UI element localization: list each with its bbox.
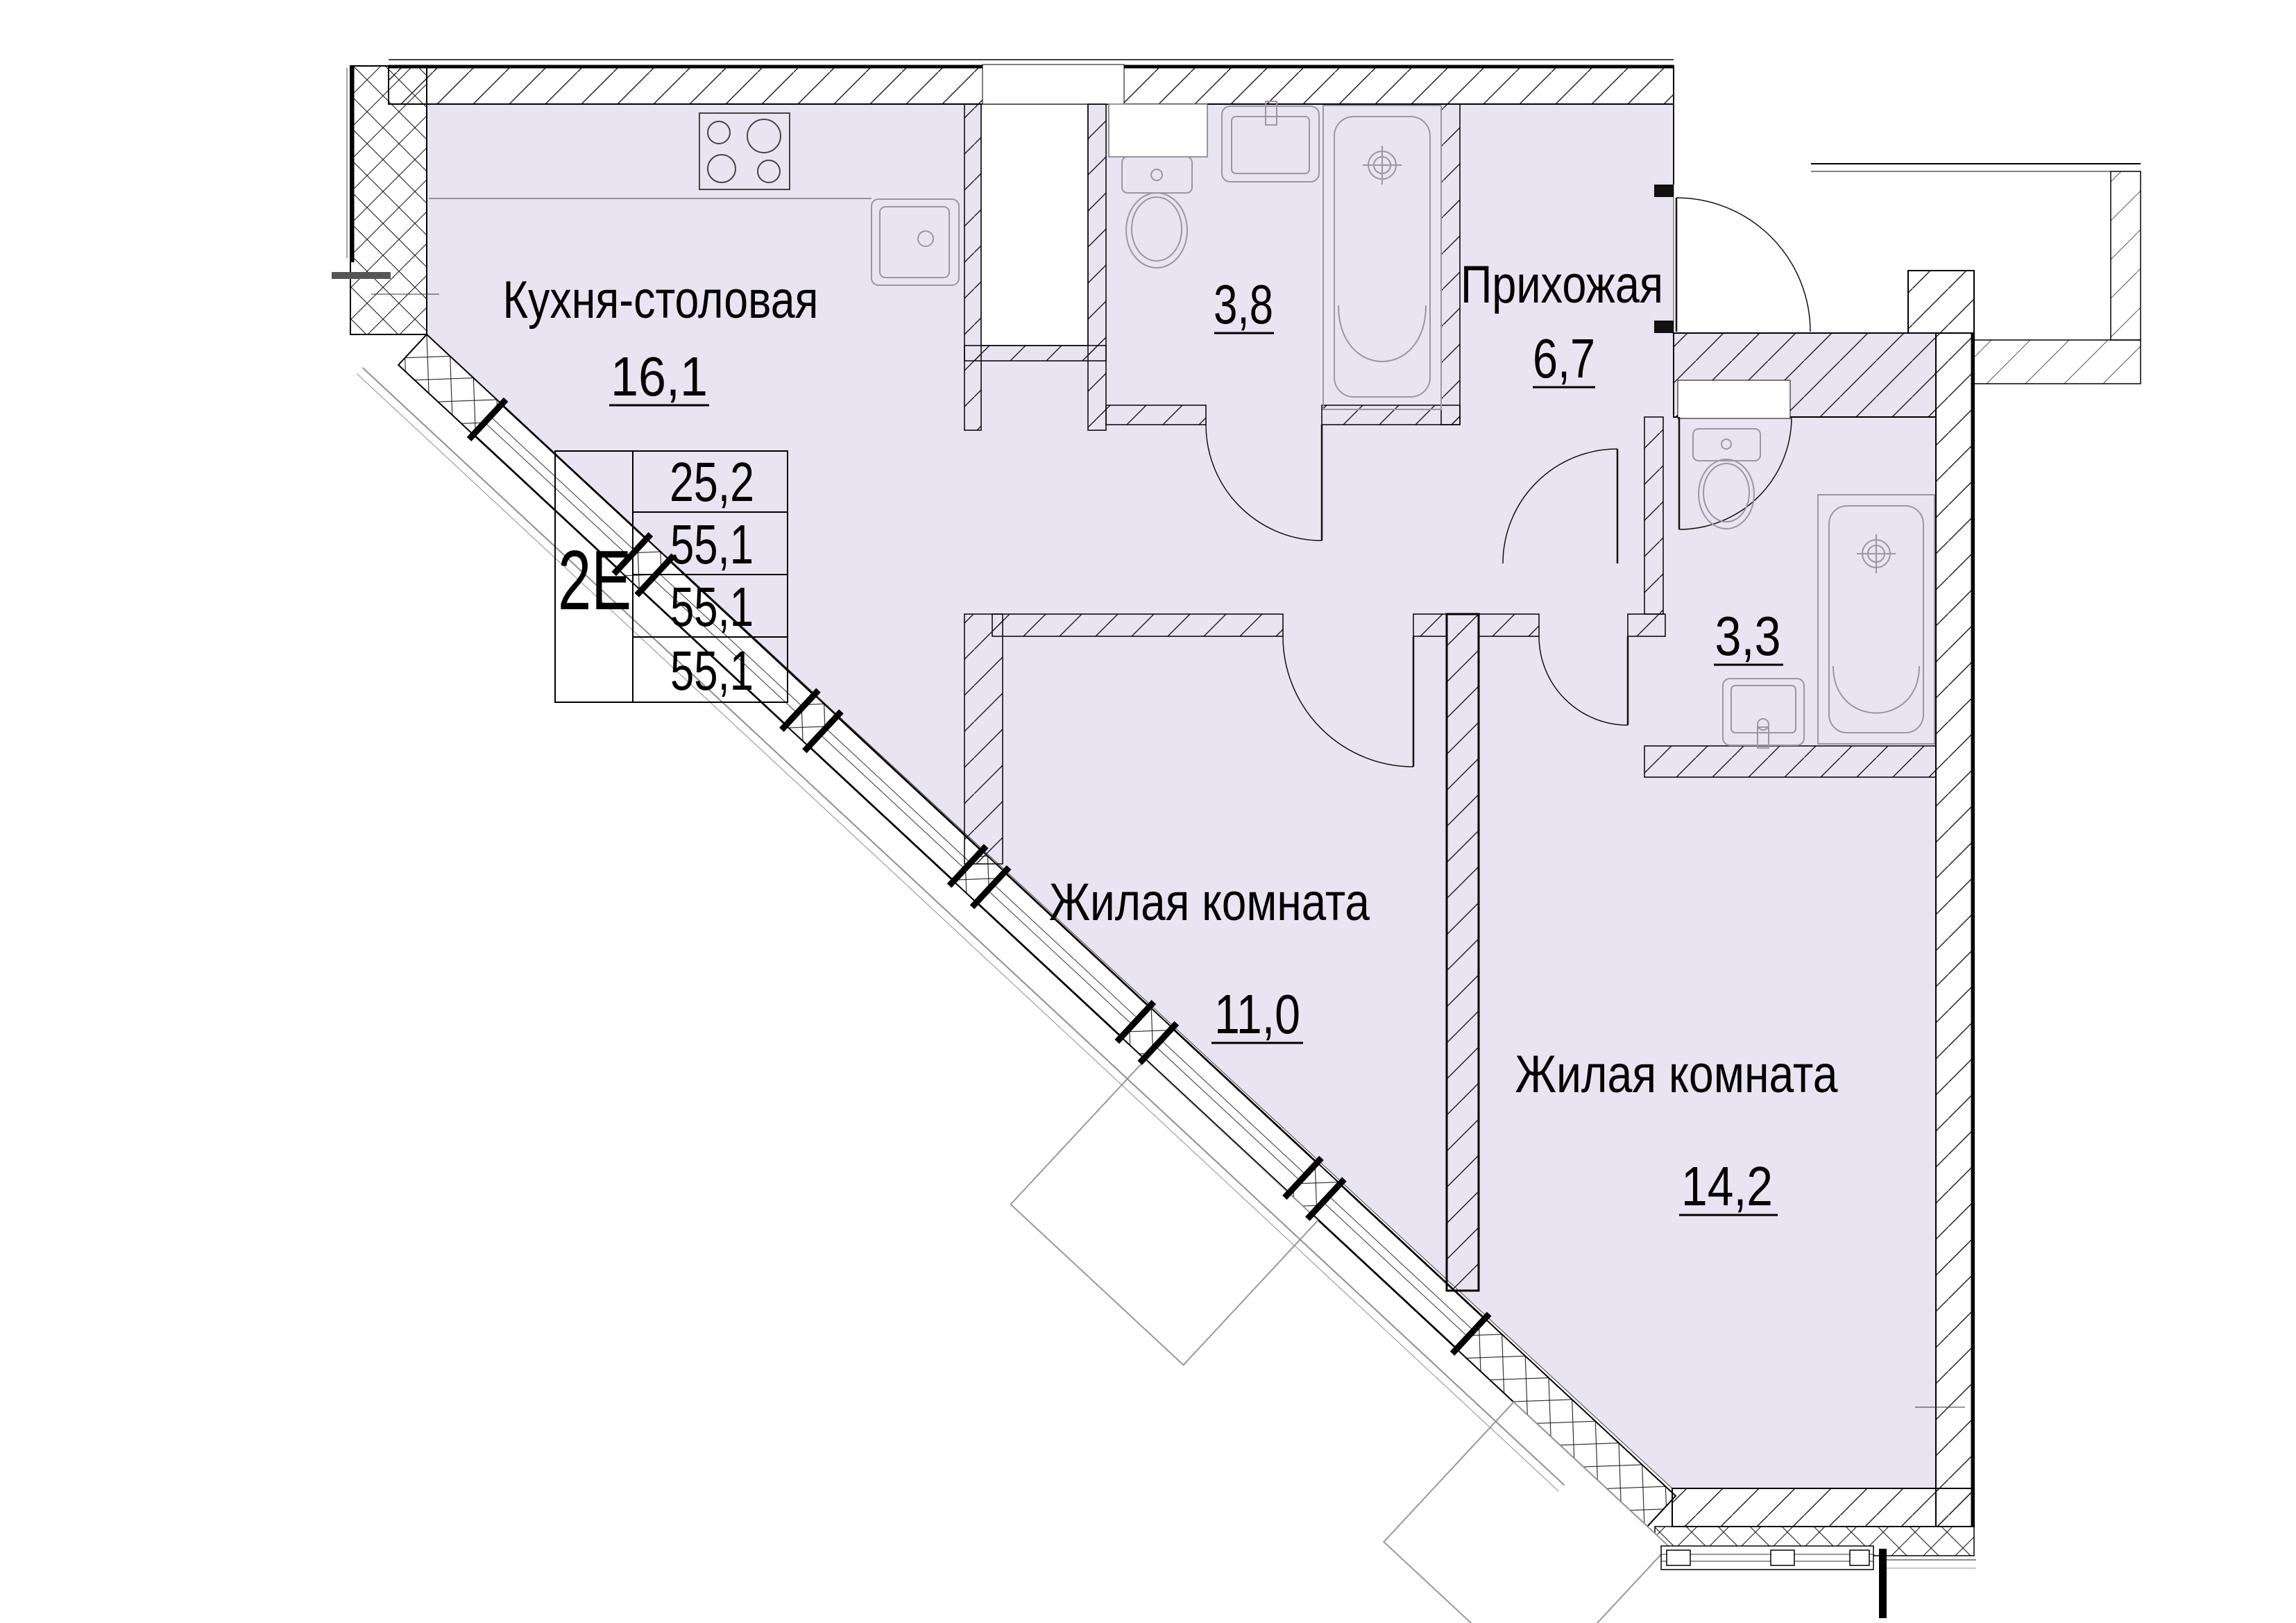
living2-area: 14,2 xyxy=(1681,1155,1773,1217)
kitchen-area: 16,1 xyxy=(611,346,708,407)
wall-bath-big-south-b xyxy=(1322,405,1460,425)
area-row-2: 55,1 xyxy=(670,513,754,575)
corridor-wall-horiz xyxy=(1974,340,2141,384)
vent-shaft xyxy=(981,104,1088,346)
entrance-jamb-top xyxy=(1654,185,1674,197)
wall-bottom xyxy=(1672,1488,1974,1527)
wall-lobby-south-a xyxy=(1479,614,1539,636)
wall-room-divider xyxy=(1447,614,1479,1291)
wall-right-step xyxy=(1908,271,1974,333)
living2-name: Жилая комната xyxy=(1515,1045,1839,1104)
wall-living1-north xyxy=(992,614,1283,636)
apartment-type-label: 2Е xyxy=(558,533,631,627)
living1-area: 11,0 xyxy=(1214,983,1300,1045)
hallway-area: 6,7 xyxy=(1533,328,1595,389)
bath-small-area: 3,3 xyxy=(1715,605,1781,667)
wall-living1-north-pier xyxy=(1413,614,1447,636)
window-bottom xyxy=(1661,1546,1873,1570)
bottom-window-band xyxy=(1661,1546,1976,1618)
washing-machine-icon xyxy=(1109,104,1207,157)
living1-name: Жилая комната xyxy=(1049,873,1370,932)
wall-bath-big-east xyxy=(1441,104,1460,425)
bath-small-door-opening xyxy=(1678,380,1790,418)
wall-shaft-east xyxy=(1088,104,1106,430)
wall-bath-big-south-a xyxy=(1106,405,1206,425)
facade-tick-left xyxy=(332,272,391,279)
entrance-door xyxy=(1654,104,1810,333)
wall-kitchen-living1 xyxy=(964,614,1003,864)
area-row-3: 55,1 xyxy=(670,576,754,638)
wall-lobby-south-b xyxy=(1628,614,1665,636)
wall-right xyxy=(1936,333,1974,1527)
balcony-divider xyxy=(1879,1549,1887,1618)
corridor-wall-vert xyxy=(2111,171,2141,340)
bath-big-area: 3,8 xyxy=(1214,273,1273,335)
area-row-1: 25,2 xyxy=(670,451,754,513)
vent-shaft-top-opening xyxy=(983,65,1124,104)
hallway-name: Прихожая xyxy=(1461,255,1663,314)
wall-bath-small-west xyxy=(1644,417,1663,614)
kitchen-name: Кухня-столовая xyxy=(503,271,819,330)
entrance-door-swing xyxy=(1676,198,1810,332)
wall-kitchen-east xyxy=(964,104,981,430)
wall-shaft-bottom xyxy=(964,346,1106,361)
entrance-jamb-bottom xyxy=(1654,321,1674,333)
area-row-4: 55,1 xyxy=(670,640,754,702)
wall-bath-small-south xyxy=(1644,746,1936,777)
floor-plan-page: 2Е 25,2 55,1 55,1 55,1 Кухня-столовая 16… xyxy=(0,0,2296,1623)
floor-plan: 2Е 25,2 55,1 55,1 55,1 Кухня-столовая 16… xyxy=(0,0,2296,1623)
